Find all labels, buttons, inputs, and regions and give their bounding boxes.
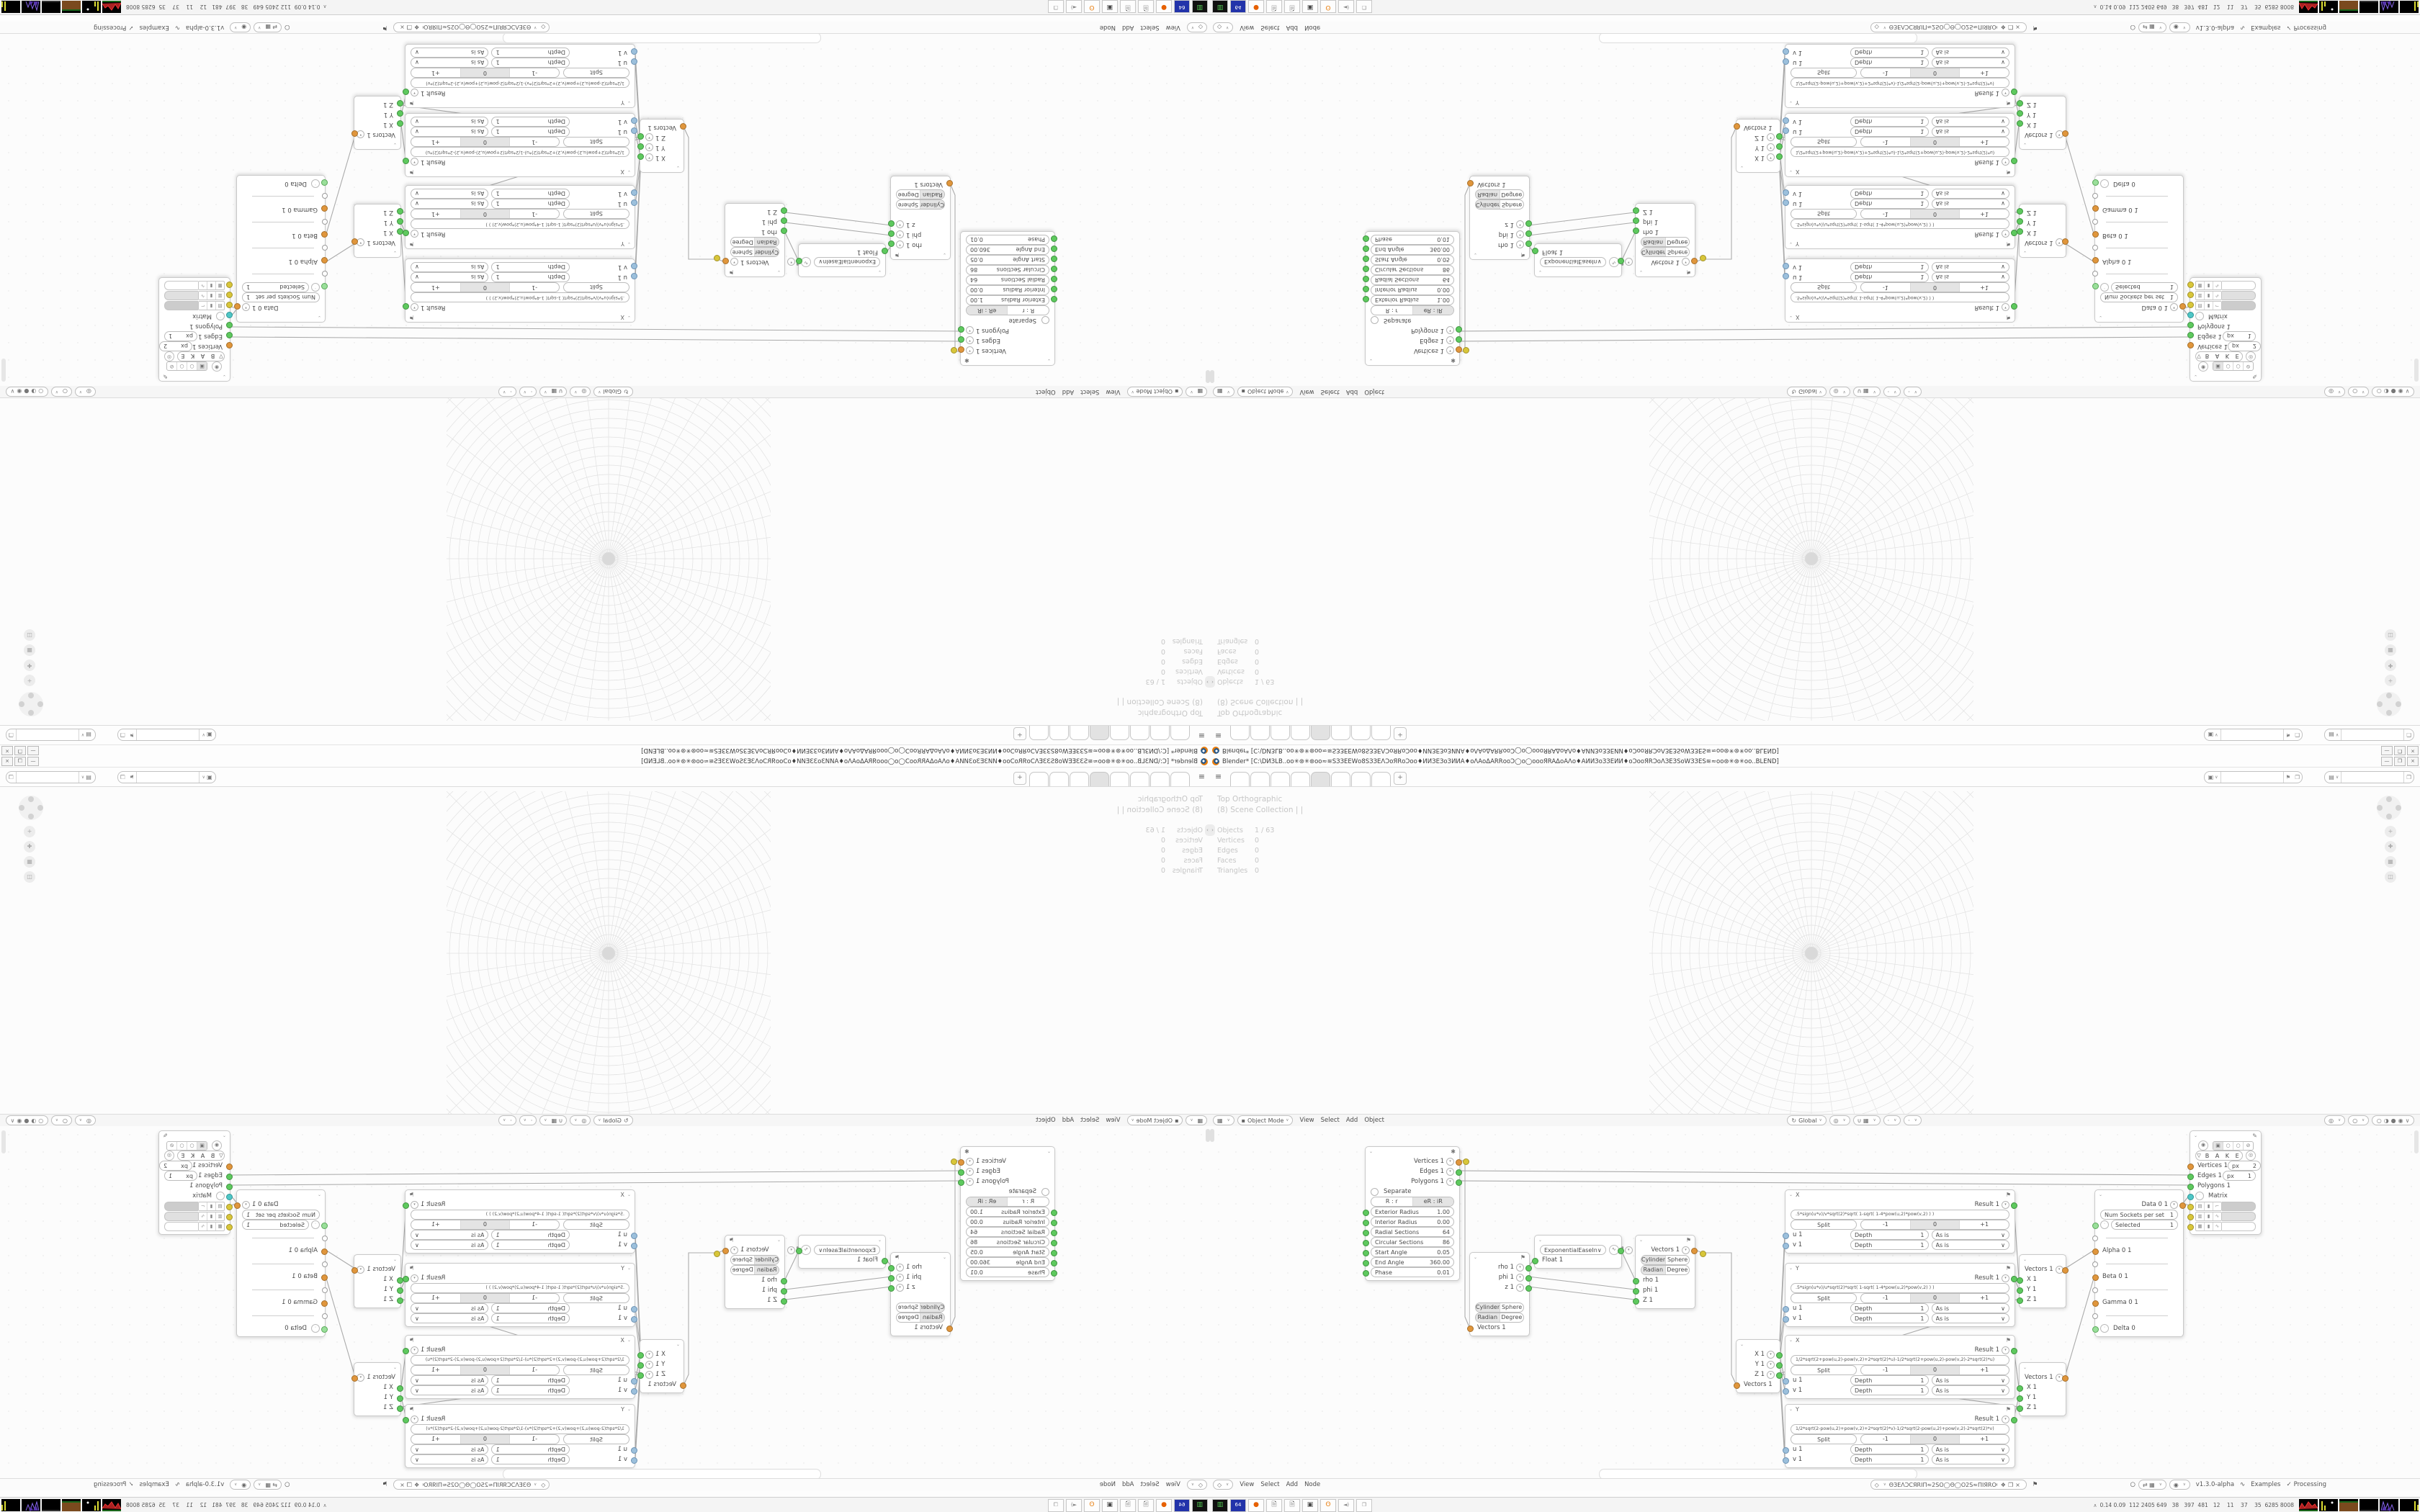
- segment-option[interactable]: R : r: [1371, 306, 1412, 315]
- socket-green[interactable]: [2017, 1395, 2023, 1402]
- socket-green[interactable]: [2017, 1405, 2023, 1412]
- socket-orange[interactable]: [234, 1202, 241, 1209]
- output-menu-icon[interactable]: ▾: [1767, 134, 1775, 142]
- editor-type-button[interactable]: ◇∨: [1187, 1480, 1207, 1490]
- formula-field[interactable]: .5*sign(u*v)/u*sqrt(2)*sqrt( 1-sqrt( 1-4…: [1791, 219, 2009, 229]
- value-toggle[interactable]: ◦: [2100, 283, 2109, 292]
- segment-option[interactable]: +1: [411, 283, 461, 292]
- menu-select[interactable]: Select: [1080, 388, 1099, 395]
- segment-option[interactable]: Radian: [756, 1266, 779, 1274]
- attribute-type-option[interactable]: ∿: [199, 292, 207, 300]
- output-menu-icon[interactable]: ▾: [1767, 1371, 1775, 1379]
- depth-field[interactable]: Depth1: [1850, 1313, 1929, 1323]
- axis-mode-dropdown[interactable]: As is∨: [1932, 199, 2010, 209]
- formula-field[interactable]: 1/2*sqrt(2+pow(u,2)-pow(v,2)+2*sqrt(2)*u…: [1791, 147, 2009, 157]
- depth-field[interactable]: Depth1: [1850, 1385, 1929, 1395]
- segment-option[interactable]: -1: [510, 1220, 559, 1229]
- overlays-button[interactable]: ◉∨: [2169, 1480, 2190, 1490]
- node-header[interactable]: ⌄: [1535, 1236, 1621, 1245]
- scene-selector[interactable]: ▣ ∨ ⚑ ❐: [2204, 729, 2303, 741]
- split-button[interactable]: Split: [563, 68, 629, 78]
- workspace-tab[interactable]: [1270, 772, 1290, 786]
- node-header[interactable]: ⌄Y⚑: [1785, 1264, 2015, 1273]
- collapse-icon[interactable]: ⌄: [627, 241, 631, 246]
- node-grid-generator[interactable]: ⌄✱Vertices 1▾Edges 1▾Polygons 1▾Separate…: [960, 1146, 1055, 1281]
- segment-option[interactable]: 0: [1910, 138, 1960, 146]
- split-button[interactable]: Split: [1791, 1293, 1857, 1303]
- text-editor-icon[interactable]: 🗎: [1284, 1, 1300, 14]
- magnify-selector[interactable]: ◎∨: [75, 1115, 96, 1125]
- collapse-icon[interactable]: ⌄: [2099, 1192, 2102, 1197]
- segment-option[interactable]: +1: [1959, 210, 2009, 218]
- value-field[interactable]: Num Sockets per set1: [242, 292, 320, 302]
- scene-name-field[interactable]: [2220, 772, 2284, 783]
- socket-blue[interactable]: [631, 1316, 637, 1323]
- output-menu-icon[interactable]: ▾: [411, 158, 418, 166]
- curve-icon[interactable]: ∿: [801, 257, 811, 267]
- minimize-button[interactable]: —: [2381, 757, 2393, 766]
- display-mode-option[interactable]: ⊘: [167, 1142, 177, 1150]
- node-header[interactable]: ⌄X⚑: [405, 1336, 635, 1345]
- collapse-icon[interactable]: ⌄: [627, 169, 631, 174]
- menu-view[interactable]: View: [1106, 1117, 1120, 1124]
- pivot-selector[interactable]: ◎∨: [570, 1115, 591, 1125]
- axis-mode-dropdown[interactable]: As is∨: [1932, 1385, 2010, 1395]
- checkbox[interactable]: [1041, 317, 1049, 325]
- move-button[interactable]: ✚: [2385, 660, 2396, 671]
- examples-menu[interactable]: Examples: [2251, 1481, 2280, 1488]
- node-header[interactable]: ⌄Y⚑: [1785, 1405, 2015, 1414]
- pin-icon[interactable]: ⚑: [2284, 732, 2293, 738]
- shading-dropdown[interactable]: ∨: [2406, 389, 2410, 395]
- output-menu-icon[interactable]: ▾: [787, 1246, 795, 1254]
- socket-orange[interactable]: [680, 1382, 686, 1389]
- node-separate-xyz[interactable]: ⌄X 1▾Y 1▾Z 1▾Vectors 1: [640, 1339, 684, 1393]
- split-button[interactable]: Split: [563, 1293, 629, 1303]
- socket-blue[interactable]: [631, 1306, 637, 1313]
- collapse-icon[interactable]: ⌄: [1474, 252, 1477, 257]
- depth-field[interactable]: Depth1: [492, 127, 570, 137]
- attribute-type-option[interactable]: ∿: [2213, 292, 2221, 300]
- socket-yellow[interactable]: [226, 1224, 233, 1230]
- value-field[interactable]: Radial Sections64: [1371, 275, 1454, 285]
- depth-field[interactable]: Depth1: [1850, 48, 1929, 58]
- snap-selector[interactable]: ∪ ▦∨: [539, 387, 567, 397]
- move-button[interactable]: ✚: [24, 841, 35, 852]
- socket-green[interactable]: [1525, 1265, 1532, 1272]
- split-range-toggle[interactable]: -10+1: [1860, 1220, 2009, 1230]
- axis-mode-dropdown[interactable]: As is∨: [411, 199, 489, 209]
- depth-field[interactable]: Depth1: [1850, 58, 1929, 68]
- axis-mode-dropdown[interactable]: As is∨: [1932, 1444, 2010, 1454]
- collapse-icon[interactable]: ⌄: [223, 1133, 226, 1138]
- bake-options-button[interactable]: ◎: [164, 351, 174, 361]
- attribute-value-bar[interactable]: [164, 292, 198, 301]
- socket-green[interactable]: [403, 1202, 409, 1209]
- node-combine-xyz-a[interactable]: ⌄Vectors 1▾X 1Y 1Z 1: [354, 1254, 401, 1308]
- floppy-64-icon[interactable]: 64: [1174, 1, 1190, 14]
- collapse-icon[interactable]: ⌄: [2023, 1257, 2027, 1262]
- node-editor[interactable]: ⌄✱Vertices 1▾Edges 1▾Polygons 1▾Separate…: [0, 1126, 1210, 1478]
- segmented-toggle[interactable]: CylinderSphere: [1475, 1302, 1524, 1313]
- node-data[interactable]: ⌄Data 0 1▾Num Sockets per set1◦Selected1…: [236, 1189, 326, 1337]
- attribute-type-buttons[interactable]: ▦▮∿: [2195, 282, 2222, 291]
- workspace-tab[interactable]: [1090, 772, 1109, 786]
- socket-green[interactable]: [882, 1258, 888, 1264]
- px-field[interactable]: px2: [159, 341, 192, 351]
- socket-hollow[interactable]: [322, 271, 328, 276]
- collapse-icon[interactable]: ⌄: [1789, 169, 1793, 174]
- easing-dropdown[interactable]: ExponentialEaseIn∨: [814, 1245, 880, 1255]
- socket-blue[interactable]: [1783, 1388, 1789, 1395]
- node-combine-xyz-b[interactable]: ⌄Vectors 1▾X 1Y 1Z 1: [2019, 1362, 2066, 1416]
- socket-hollow[interactable]: [2092, 245, 2098, 251]
- output-menu-icon[interactable]: ▾: [896, 221, 904, 229]
- display-mode-option[interactable]: ○: [2233, 1142, 2243, 1150]
- output-menu-icon[interactable]: ▾: [2002, 304, 2009, 312]
- socket-blue[interactable]: [631, 1233, 637, 1239]
- px-field[interactable]: px1: [2223, 331, 2256, 341]
- socket-green[interactable]: [888, 1265, 895, 1272]
- workspace-tab[interactable]: [1291, 726, 1310, 740]
- display-mode-buttons[interactable]: ▣○○⊘: [166, 1141, 207, 1151]
- depth-field[interactable]: Depth1: [1850, 1303, 1929, 1313]
- workspace-tab[interactable]: [1170, 772, 1190, 786]
- socket-blue[interactable]: [631, 1378, 637, 1385]
- socket-yellow[interactable]: [226, 1214, 233, 1220]
- attribute-value-bar[interactable]: [2222, 1222, 2256, 1231]
- split-range-toggle[interactable]: -10+1: [411, 282, 560, 292]
- workspace-tab[interactable]: [1110, 772, 1129, 786]
- navigation-gizmo[interactable]: [19, 796, 43, 820]
- segment-option[interactable]: 0: [1910, 283, 1960, 292]
- view-layer-field[interactable]: [2341, 772, 2404, 783]
- system-monitor-icon[interactable]: ▥: [1212, 1499, 1228, 1512]
- px-field[interactable]: px1: [164, 331, 197, 341]
- socket-orange[interactable]: [722, 1248, 729, 1254]
- depth-field[interactable]: Depth1: [1850, 1240, 1929, 1250]
- socket-green[interactable]: [1051, 1270, 1057, 1277]
- workspace-tab[interactable]: [1090, 726, 1109, 740]
- window-icon[interactable]: ❐: [1356, 1499, 1372, 1512]
- vertical-scrollbar[interactable]: [2414, 359, 2419, 382]
- node-combine-xyz-a[interactable]: ⌄Vectors 1▾X 1Y 1Z 1: [354, 204, 401, 258]
- socket-blue[interactable]: [1783, 1306, 1789, 1313]
- depth-field[interactable]: Depth1: [492, 1303, 570, 1313]
- depth-field[interactable]: Depth1: [492, 199, 570, 209]
- fake-user-icon[interactable]: ○: [284, 1481, 290, 1488]
- system-monitor-icon[interactable]: ▥: [1192, 1, 1208, 14]
- attribute-type-option[interactable]: ⌐: [199, 1202, 207, 1210]
- collapse-icon[interactable]: ⌄: [1369, 1149, 1373, 1154]
- attribute-type-option[interactable]: ▮: [207, 282, 216, 290]
- minimize-button[interactable]: —: [2381, 746, 2393, 755]
- segment-option[interactable]: -1: [1861, 138, 1910, 146]
- copy-icon[interactable]: ❐: [6, 774, 16, 780]
- node-header[interactable]: ⌄Y⚑: [405, 98, 635, 107]
- node-header[interactable]: ⌄Y⚑: [1785, 239, 2015, 248]
- node-formula-y2[interactable]: ⌄Y⚑Result 1▾1/2*sqrt(2-pow(u,2)+pow(v,2)…: [405, 1404, 635, 1468]
- collapse-icon[interactable]: ⌄: [627, 1266, 631, 1271]
- workspace-tab[interactable]: [1331, 726, 1350, 740]
- volume-icon[interactable]: ◄): [1338, 1, 1354, 14]
- value-field[interactable]: Interior Radius0.00: [1371, 1217, 1454, 1227]
- depth-field[interactable]: Depth1: [1850, 1454, 1929, 1464]
- snap-node-button[interactable]: ⇄ ▦∨: [254, 22, 282, 32]
- grid-button[interactable]: ◫: [2385, 871, 2396, 883]
- axis-mode-dropdown[interactable]: As is∨: [411, 1454, 489, 1464]
- node-header[interactable]: ⌄: [1736, 163, 1780, 172]
- orientation-selector[interactable]: ↻ Global∨: [1787, 387, 1826, 397]
- menu-add[interactable]: Add: [1062, 388, 1074, 395]
- socket-yellow[interactable]: [2187, 1224, 2194, 1230]
- grid-button[interactable]: ◫: [2385, 629, 2396, 641]
- checkbox[interactable]: [1041, 1188, 1049, 1196]
- value-field[interactable]: Exterior Radius1.00: [966, 1207, 1049, 1217]
- segment-option[interactable]: R : r: [1008, 306, 1049, 315]
- examples-menu[interactable]: Examples: [140, 24, 169, 31]
- examples-menu[interactable]: Examples: [2251, 24, 2280, 31]
- editor-type-button[interactable]: ▦∨: [1213, 387, 1234, 397]
- attribute-type-buttons[interactable]: ▥▮∿: [2195, 292, 2222, 301]
- segment-option[interactable]: -1: [1861, 1366, 1910, 1374]
- segment-option[interactable]: +1: [411, 210, 461, 218]
- workspace-tab[interactable]: [1270, 726, 1290, 740]
- socket-green[interactable]: [2017, 1297, 2023, 1304]
- attribute-type-option[interactable]: ▦: [2196, 282, 2204, 290]
- segmented-toggle[interactable]: R : reR : iR: [1371, 1197, 1454, 1207]
- text-editor-icon[interactable]: 🗎: [1284, 1499, 1300, 1512]
- node-header[interactable]: ⌄⚑: [725, 267, 784, 276]
- value-toggle[interactable]: ◦: [311, 1220, 320, 1229]
- segment-option[interactable]: 0: [1910, 1220, 1960, 1229]
- node-header[interactable]: ⌄✎: [159, 372, 230, 381]
- shading-mode-2[interactable]: ●: [2391, 389, 2396, 395]
- socket-hollow[interactable]: [2092, 1313, 2098, 1319]
- collapse-icon[interactable]: ⌄: [393, 142, 397, 147]
- attribute-type-option[interactable]: ▮: [2204, 292, 2213, 300]
- output-menu-icon[interactable]: ▾: [1767, 1361, 1775, 1369]
- segmented-toggle[interactable]: RadianDegree: [896, 1313, 945, 1323]
- editor-type-button[interactable]: ◇∨: [1213, 1480, 1233, 1490]
- output-menu-icon[interactable]: ▾: [1516, 241, 1524, 249]
- vertical-scrollbar[interactable]: [2414, 1130, 2419, 1153]
- copy-icon[interactable]: ❐: [118, 732, 127, 738]
- value-field[interactable]: Phase0.01: [1371, 1267, 1454, 1277]
- output-menu-icon[interactable]: ▾: [966, 347, 974, 355]
- node-combine-cylindrical[interactable]: ⌄⚑Vectors 1▾CylinderSphereRadianDegreerh…: [725, 203, 785, 277]
- split-button[interactable]: Split: [1791, 1365, 1857, 1375]
- segment-option[interactable]: Cylinder: [1476, 1303, 1500, 1312]
- new-workspace-button[interactable]: +: [1013, 727, 1026, 740]
- output-menu-icon[interactable]: ▾: [966, 337, 974, 345]
- horizontal-scrollbar[interactable]: [503, 1469, 821, 1478]
- toolbar-expand-arrow[interactable]: ›: [1210, 824, 1215, 836]
- easing-dropdown[interactable]: ExponentialEaseIn∨: [1540, 257, 1606, 267]
- value-field[interactable]: Phase0.01: [966, 235, 1049, 245]
- vertical-scrollbar[interactable]: [1, 1130, 6, 1153]
- segment-option[interactable]: Cylinder: [755, 248, 779, 256]
- attribute-type-option[interactable]: ∿: [2213, 282, 2221, 290]
- formula-field[interactable]: .5*sign(u*v)/v*sqrt(2)*sqrt( 1-sqrt( 1-4…: [411, 292, 629, 302]
- output-menu-icon[interactable]: ▾: [357, 1374, 364, 1382]
- reroute-node[interactable]: [951, 347, 957, 354]
- display-mode-option[interactable]: ○: [187, 363, 197, 371]
- new-workspace-button[interactable]: +: [1394, 772, 1407, 785]
- pivot-selector[interactable]: ◎∨: [1829, 387, 1850, 397]
- socket-orange[interactable]: [351, 1267, 358, 1274]
- socket-orange[interactable]: [351, 1375, 358, 1382]
- segmented-toggle[interactable]: R : reR : iR: [966, 1197, 1049, 1207]
- attribute-value-bar[interactable]: [164, 282, 198, 291]
- bake-button[interactable]: ▽B A K E: [2195, 1151, 2243, 1161]
- snap-node-button[interactable]: ⇄ ▦∨: [2138, 1480, 2166, 1490]
- axis-mode-dropdown[interactable]: As is∨: [411, 1385, 489, 1395]
- segment-option[interactable]: Degree: [1500, 1313, 1524, 1322]
- split-button[interactable]: Split: [563, 282, 629, 292]
- bake-options-button[interactable]: ◎: [2246, 1151, 2256, 1161]
- output-menu-icon[interactable]: ▾: [242, 304, 250, 312]
- node-data[interactable]: ⌄Data 0 1▾Num Sockets per set1◦Selected1…: [236, 175, 326, 323]
- output-menu-icon[interactable]: ▾: [2002, 1416, 2009, 1423]
- output-menu-icon[interactable]: ▾: [1516, 231, 1524, 239]
- visibility-icon[interactable]: ◉: [2198, 361, 2208, 372]
- bake-button[interactable]: ▽B A K E: [2195, 351, 2243, 361]
- display-mode-option[interactable]: ○: [177, 1142, 187, 1150]
- shading-mode-0[interactable]: ○: [38, 1117, 43, 1124]
- copy-icon[interactable]: ❐: [2293, 732, 2302, 738]
- mode-selector[interactable]: ▪ Object Mode∨: [1237, 1115, 1294, 1125]
- depth-field[interactable]: Depth1: [492, 1454, 570, 1464]
- segment-option[interactable]: 0: [461, 283, 511, 292]
- axis-mode-dropdown[interactable]: As is∨: [411, 58, 489, 68]
- value-toggle[interactable]: ◦: [311, 179, 320, 188]
- menu-node[interactable]: Node: [1100, 1481, 1116, 1488]
- value-field[interactable]: Interior Radius0.00: [1371, 285, 1454, 295]
- px-field[interactable]: px1: [164, 1171, 197, 1181]
- formula-field[interactable]: 1/2*sqrt(2+pow(u,2)-pow(v,2)+2*sqrt(2)*u…: [1791, 1355, 2009, 1365]
- segment-option[interactable]: R : r: [1008, 1197, 1049, 1206]
- volume-icon[interactable]: ◄): [1066, 1499, 1082, 1512]
- toolbar-expand-arrow[interactable]: ›: [1205, 676, 1210, 688]
- menu-object[interactable]: Object: [1036, 1117, 1056, 1124]
- split-range-toggle[interactable]: -10+1: [1860, 68, 2009, 78]
- attribute-type-option[interactable]: ▤: [2196, 302, 2204, 310]
- menu-add[interactable]: Add: [1286, 1481, 1298, 1488]
- socket-hollow[interactable]: [322, 1236, 328, 1241]
- node-bake[interactable]: ⌄✎◉▣○○⊘▽B A K E◎Vertices 1px2Edges 1px1P…: [2190, 1130, 2262, 1235]
- axis-mode-dropdown[interactable]: As is∨: [1932, 1375, 2010, 1385]
- attribute-type-option[interactable]: ⌐: [199, 302, 207, 310]
- socket-green[interactable]: [637, 1362, 644, 1369]
- socket-orange[interactable]: [2092, 1300, 2099, 1307]
- display-mode-option[interactable]: ○: [2233, 363, 2243, 371]
- workspace-tab[interactable]: [1250, 772, 1270, 786]
- node-header[interactable]: ⌄Y⚑: [1785, 98, 2015, 107]
- pin-icon[interactable]: ⚑: [2284, 774, 2293, 780]
- split-range-toggle[interactable]: -10+1: [411, 1365, 560, 1375]
- output-menu-icon[interactable]: ▾: [2002, 1346, 2009, 1354]
- collapse-icon[interactable]: ⌄: [1047, 1149, 1051, 1154]
- socket-green[interactable]: [2017, 1287, 2023, 1294]
- workspace-tab[interactable]: [1150, 772, 1170, 786]
- shading-dropdown[interactable]: ∨: [11, 389, 15, 395]
- attribute-type-option[interactable]: ▮: [2204, 1223, 2213, 1230]
- pin-icon[interactable]: ⚑: [2033, 24, 2038, 31]
- socket-blue[interactable]: [631, 1388, 637, 1395]
- axis-mode-dropdown[interactable]: As is∨: [1932, 58, 2010, 68]
- depth-field[interactable]: Depth1: [1850, 1444, 1929, 1454]
- display-mode-option[interactable]: ○: [187, 1142, 197, 1150]
- output-menu-icon[interactable]: ▾: [645, 144, 653, 152]
- reroute-node[interactable]: [714, 1251, 720, 1257]
- workspace-tab[interactable]: [1049, 772, 1069, 786]
- segmented-toggle[interactable]: RadianDegree: [730, 1265, 779, 1275]
- collapse-icon[interactable]: ⌄: [1047, 358, 1051, 363]
- output-menu-icon[interactable]: ▾: [1516, 1274, 1524, 1282]
- zoom-button[interactable]: +: [24, 826, 35, 837]
- segment-option[interactable]: +1: [411, 68, 461, 77]
- blender-icon[interactable]: ʘ: [1320, 1499, 1336, 1512]
- easing-dropdown[interactable]: ExponentialEaseIn∨: [814, 257, 880, 267]
- output-menu-icon[interactable]: ▾: [896, 1284, 904, 1292]
- output-menu-icon[interactable]: ▾: [1767, 1351, 1775, 1359]
- socket-hollow[interactable]: [2092, 193, 2098, 199]
- socket-orange[interactable]: [1691, 1248, 1698, 1254]
- split-range-toggle[interactable]: -10+1: [411, 68, 560, 78]
- collapse-icon[interactable]: ⌄: [1369, 358, 1373, 363]
- node-data[interactable]: ⌄Data 0 1▾Num Sockets per set1◦Selected1…: [2094, 175, 2184, 323]
- split-range-toggle[interactable]: -10+1: [411, 1434, 560, 1444]
- attribute-type-option[interactable]: ⌐: [2213, 1202, 2221, 1210]
- segment-option[interactable]: +1: [411, 1220, 461, 1229]
- workspace-tab[interactable]: [1029, 726, 1049, 740]
- display-mode-option[interactable]: ⊘: [167, 363, 177, 371]
- node-header[interactable]: ⌄Y⚑: [405, 1264, 635, 1273]
- collapse-icon[interactable]: ⌄: [2194, 1133, 2197, 1138]
- reroute-node[interactable]: [1700, 255, 1706, 261]
- workspace-tab[interactable]: [1070, 772, 1089, 786]
- socket-green[interactable]: [1633, 1298, 1639, 1305]
- node-exponential-ease[interactable]: ⌄ExponentialEaseIn∨∿ 1▾Float 1: [1534, 1235, 1622, 1269]
- output-menu-icon[interactable]: ▾: [896, 231, 904, 239]
- node-formula-x2[interactable]: ⌄X⚑Result 1▾1/2*sqrt(2+pow(u,2)-pow(v,2)…: [1785, 113, 2015, 177]
- attribute-type-option[interactable]: ▮: [207, 1202, 216, 1210]
- node-header[interactable]: ⌄: [354, 1363, 400, 1372]
- socket-orange[interactable]: [2092, 1274, 2099, 1281]
- menu-select[interactable]: Select: [1140, 1481, 1159, 1488]
- snap-selector[interactable]: ∪ ▦∨: [539, 1115, 567, 1125]
- node-formula-x1[interactable]: ⌄X⚑Result 1▾.5*sign(u*v)/v*sqrt(2)*sqrt(…: [405, 1189, 635, 1254]
- reroute-node[interactable]: [1700, 1251, 1706, 1257]
- output-menu-icon[interactable]: ▾: [2002, 89, 2009, 97]
- shading-mode-1[interactable]: ◑: [2384, 1117, 2389, 1124]
- horizontal-scrollbar[interactable]: [503, 34, 821, 43]
- view-layer-field[interactable]: [16, 729, 79, 740]
- value-toggle[interactable]: ◦: [311, 283, 320, 292]
- socket-orange[interactable]: [958, 1159, 964, 1166]
- split-range-toggle[interactable]: -10+1: [1860, 209, 2009, 219]
- menu-view[interactable]: View: [1106, 388, 1120, 395]
- value-field[interactable]: Exterior Radius1.00: [1371, 1207, 1454, 1217]
- menu-icon[interactable]: ≡: [1198, 731, 1205, 740]
- socket-orange[interactable]: [321, 1274, 328, 1281]
- output-menu-icon[interactable]: ▾: [1446, 337, 1454, 345]
- collapse-icon[interactable]: ⌄: [318, 315, 321, 320]
- output-menu-icon[interactable]: ▾: [411, 89, 418, 97]
- node-header[interactable]: ⌄X⚑: [1785, 1190, 2015, 1200]
- node-header[interactable]: ⌄X⚑: [1785, 1336, 2015, 1345]
